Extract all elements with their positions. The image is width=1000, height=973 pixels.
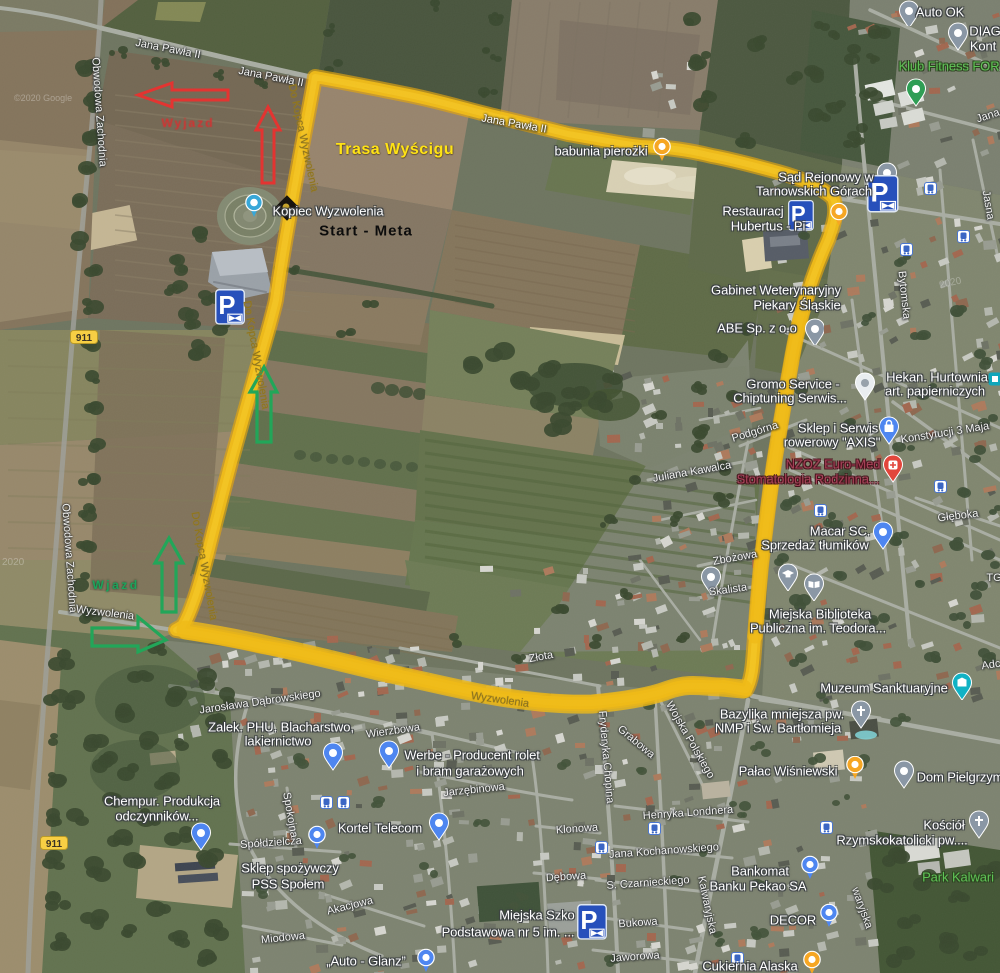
svg-text:911: 911 (76, 333, 93, 344)
svg-text:911: 911 (46, 839, 63, 850)
